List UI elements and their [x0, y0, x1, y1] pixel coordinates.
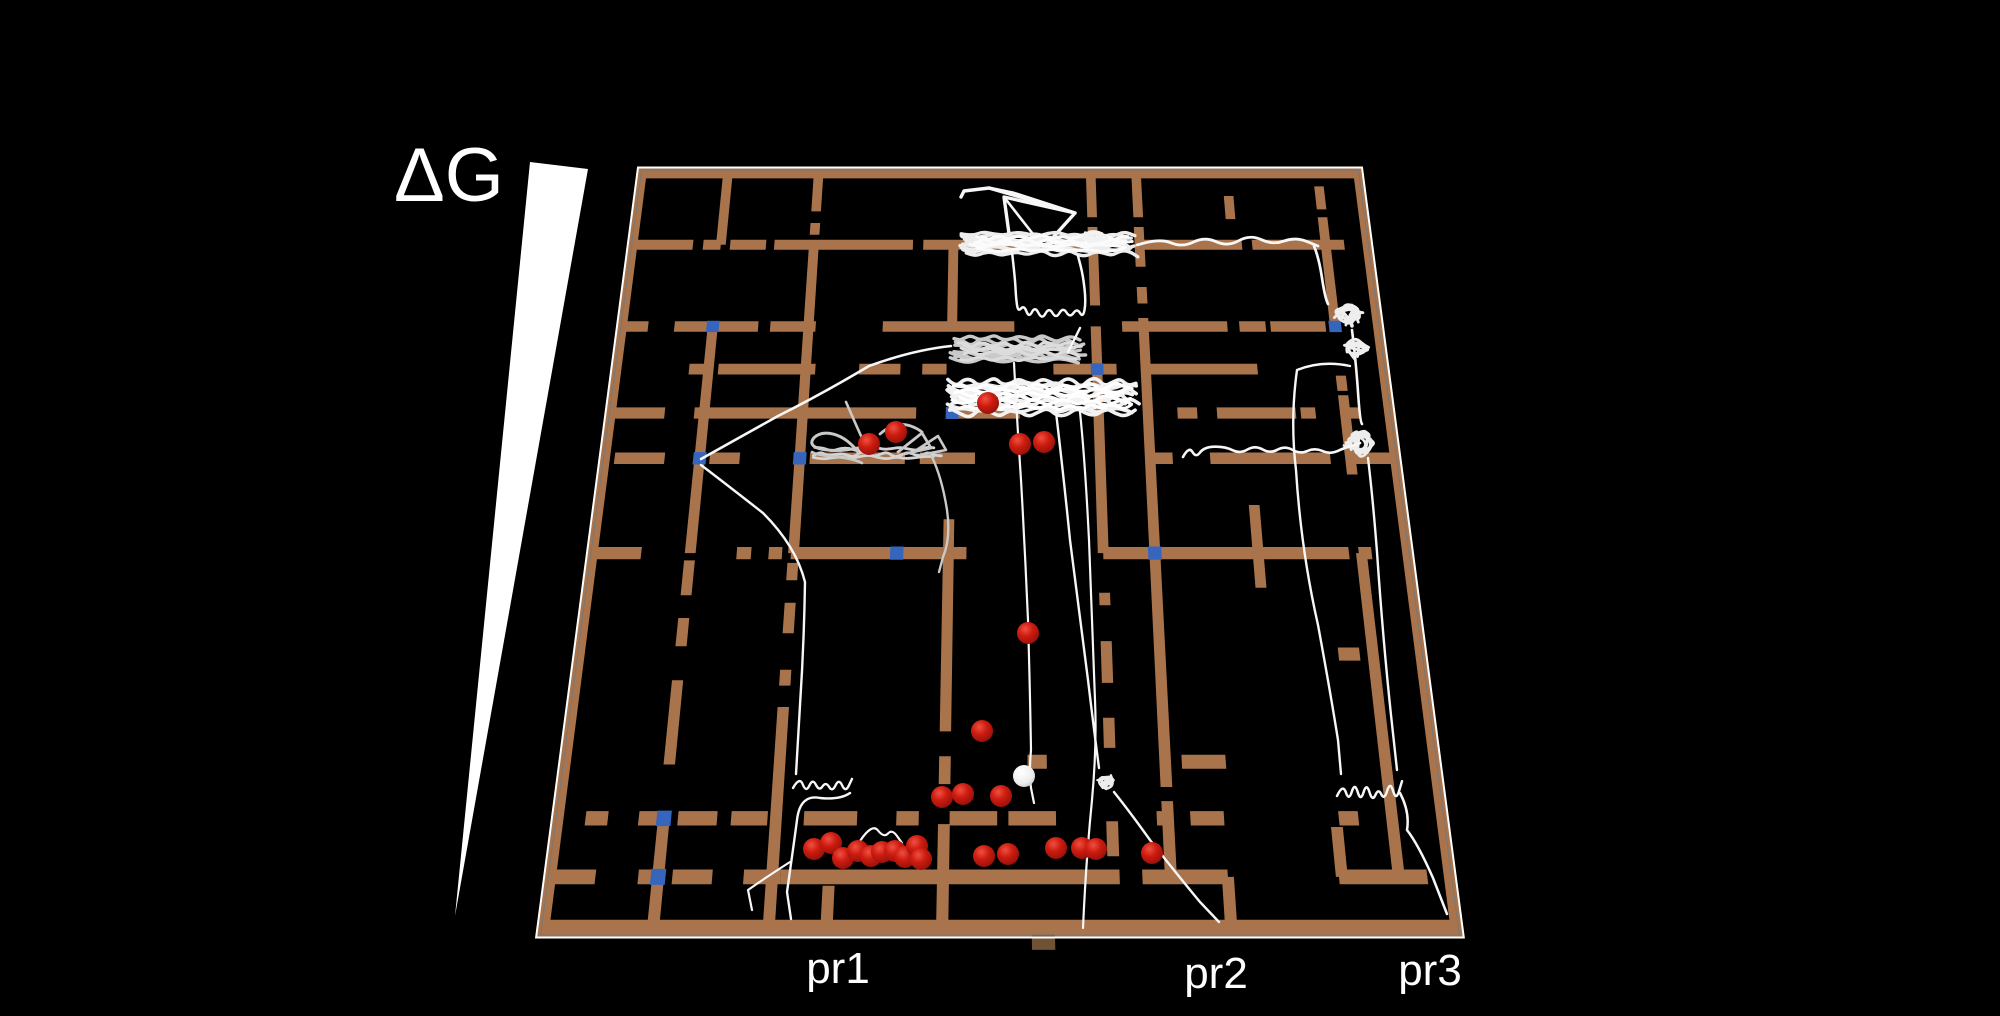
svg-text:pr1: pr1: [806, 944, 870, 993]
svg-text:pr3: pr3: [1398, 946, 1462, 995]
svg-text:ΔG: ΔG: [394, 133, 504, 218]
svg-text:pr2: pr2: [1184, 949, 1248, 998]
